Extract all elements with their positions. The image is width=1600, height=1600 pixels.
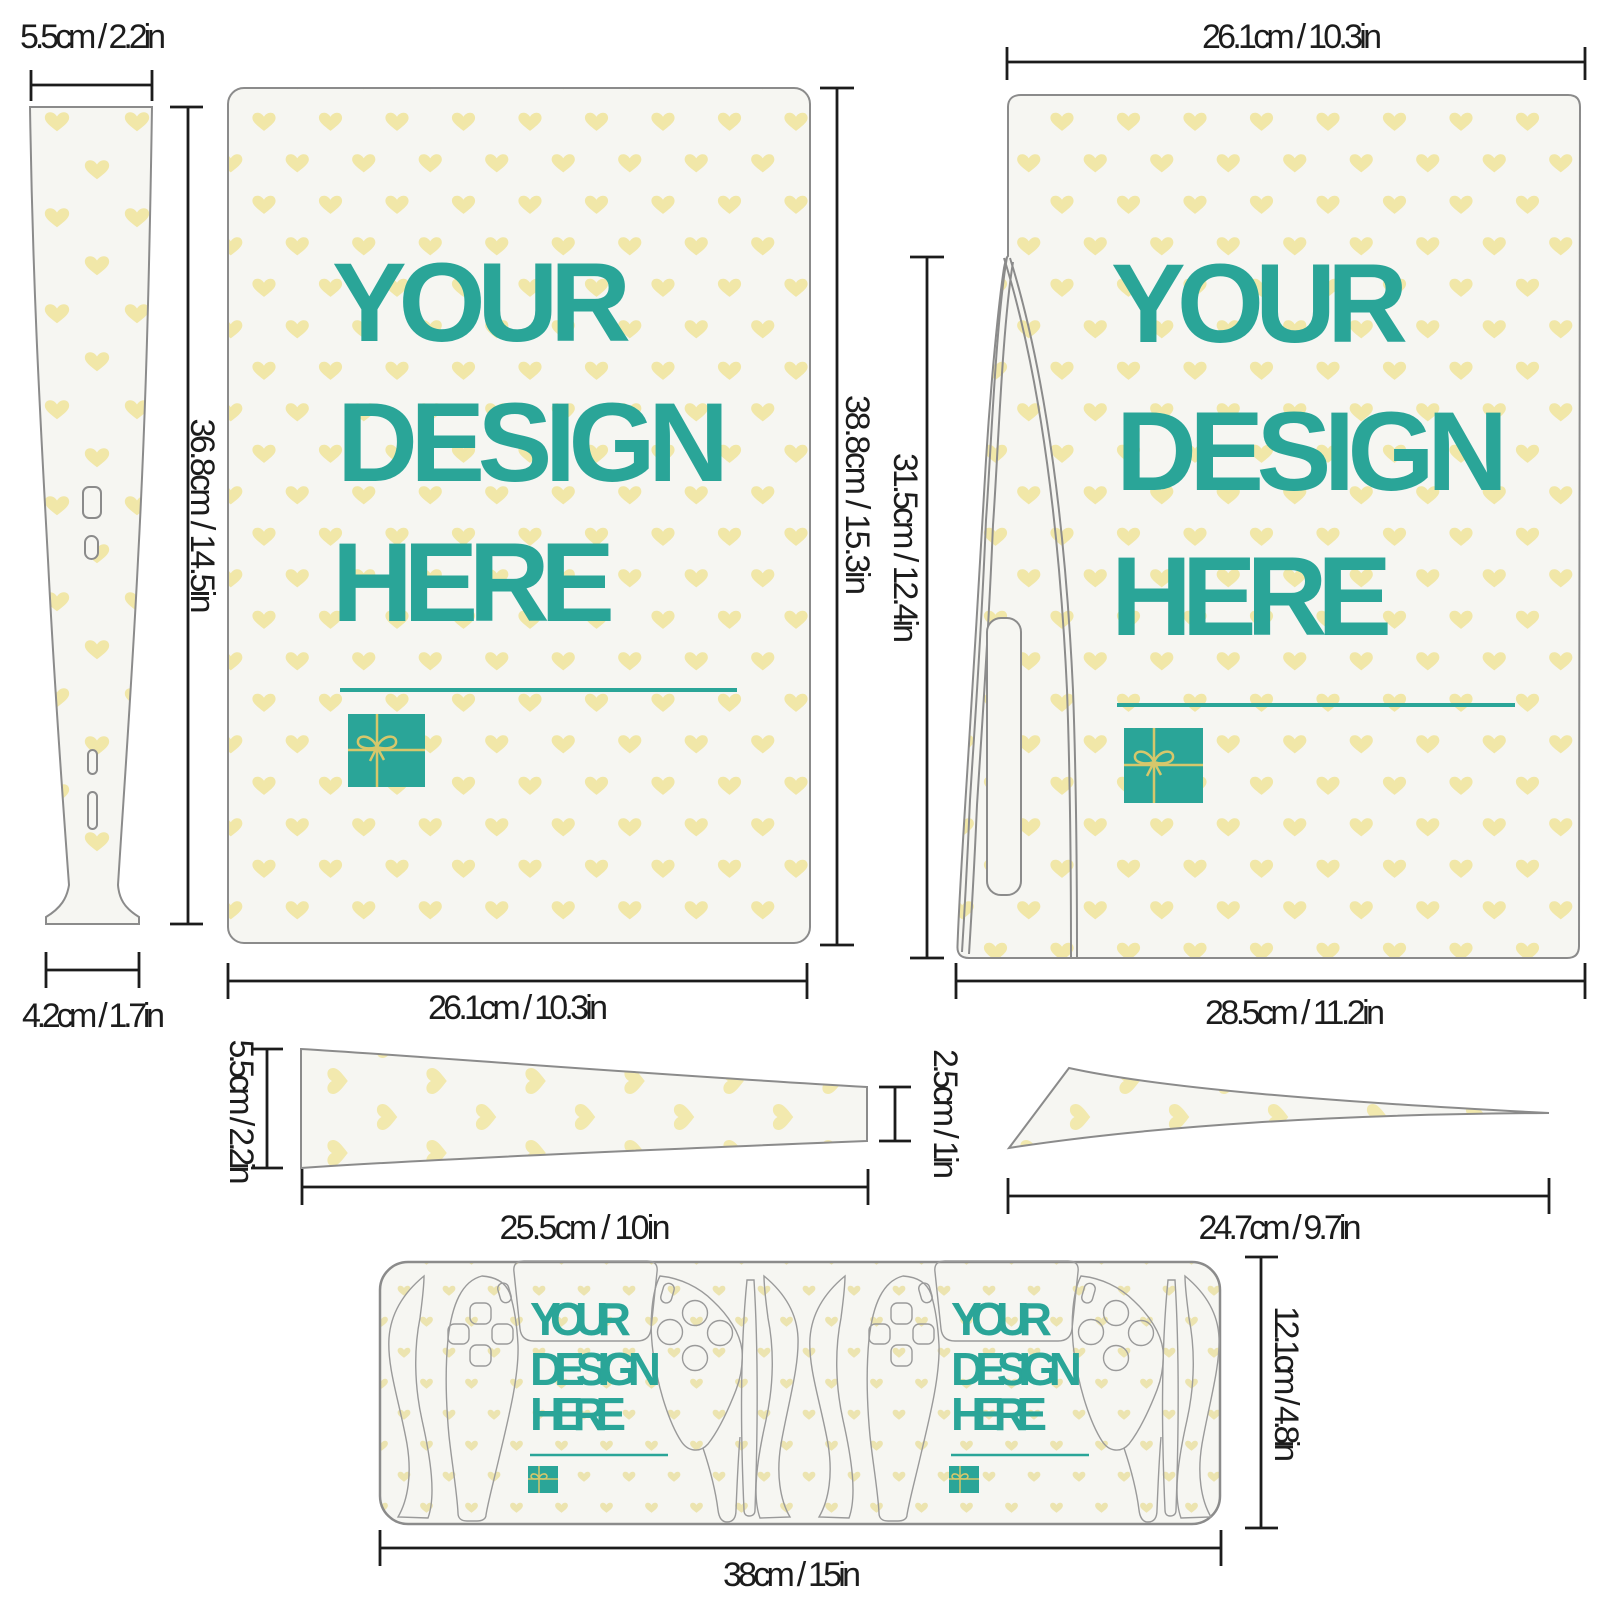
svg-text:YOUR: YOUR xyxy=(332,240,631,365)
svg-text:HERE: HERE xyxy=(332,520,615,645)
svg-text:24.7cm / 9.7in: 24.7cm / 9.7in xyxy=(1199,1209,1362,1247)
svg-text:12.1cm / 4.8in: 12.1cm / 4.8in xyxy=(1267,1306,1305,1462)
svg-text:2.5cm / 1in: 2.5cm / 1in xyxy=(926,1049,964,1179)
svg-text:YOUR: YOUR xyxy=(530,1293,631,1345)
svg-text:38cm / 15in: 38cm / 15in xyxy=(723,1556,861,1594)
svg-text:HERE: HERE xyxy=(1111,534,1392,659)
svg-text:31.5cm / 12.4in: 31.5cm / 12.4in xyxy=(886,453,924,643)
svg-text:5.5cm / 2.2in: 5.5cm / 2.2in xyxy=(20,18,166,56)
svg-text:26.1cm / 10.3in: 26.1cm / 10.3in xyxy=(428,989,608,1027)
svg-text:38.8cm / 15.3in: 38.8cm / 15.3in xyxy=(838,395,876,595)
svg-text:DESIGN: DESIGN xyxy=(337,380,729,505)
svg-text:HERE: HERE xyxy=(951,1388,1047,1440)
svg-text:HERE: HERE xyxy=(530,1388,626,1440)
svg-text:YOUR: YOUR xyxy=(1111,241,1408,366)
svg-text:4.2cm / 1.7in: 4.2cm / 1.7in xyxy=(22,997,165,1035)
svg-text:DESIGN: DESIGN xyxy=(1116,389,1508,514)
svg-text:25.5cm / 10in: 25.5cm / 10in xyxy=(500,1209,671,1247)
svg-text:YOUR: YOUR xyxy=(951,1293,1052,1345)
svg-text:36.8cm / 14.5in: 36.8cm / 14.5in xyxy=(183,419,221,614)
svg-text:28.5cm / 11.2in: 28.5cm / 11.2in xyxy=(1205,994,1385,1032)
svg-text:26.1cm / 10.3in: 26.1cm / 10.3in xyxy=(1202,18,1382,56)
svg-text:5.5cm / 2.2in: 5.5cm / 2.2in xyxy=(222,1040,260,1185)
